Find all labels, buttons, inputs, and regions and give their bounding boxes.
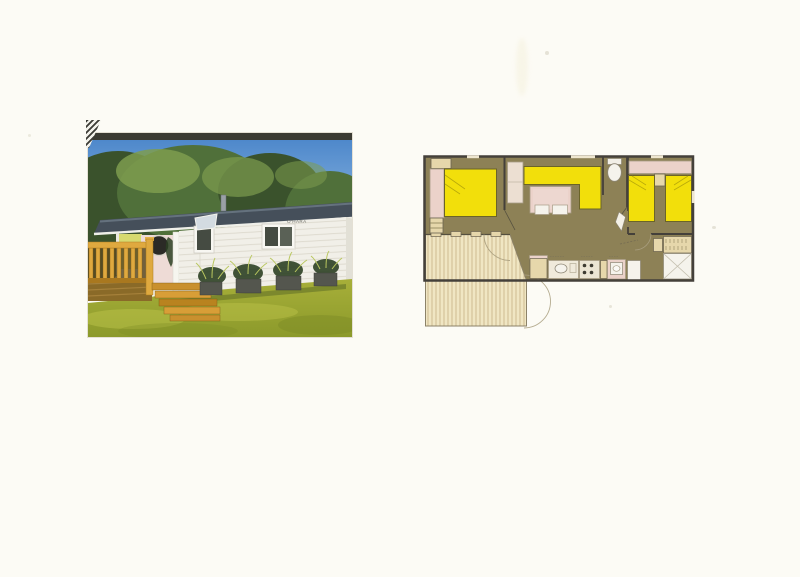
stool: [553, 205, 568, 215]
floorplan-canvas: [423, 155, 695, 329]
chimney-vent: [221, 195, 226, 211]
mobile-home-photo: O'HARA: [88, 133, 352, 337]
living-room: [524, 167, 601, 215]
wardrobe: [508, 162, 524, 203]
scan-speck: [545, 51, 549, 55]
top-rail: [88, 242, 151, 248]
stool: [535, 205, 549, 215]
window-awning-open: [194, 214, 217, 253]
bathroom-door-leaf: [628, 261, 641, 281]
sink: [555, 264, 567, 273]
window-double: [261, 224, 296, 251]
scan-speck: [28, 134, 31, 137]
wardrobe: [430, 169, 444, 218]
photo-canvas: O'HARA: [88, 133, 352, 337]
stove: [580, 261, 600, 279]
scan-speck: [712, 226, 716, 229]
nightstand: [655, 174, 666, 186]
brand-sign: O'HARA: [287, 219, 307, 224]
headboard-shelf: [629, 161, 692, 174]
scan-smudge: [516, 38, 528, 96]
scan-speck: [609, 305, 612, 308]
scanned-brochure-page: O'HARA: [0, 0, 800, 577]
door-swing-arc: [524, 275, 551, 328]
vanity: [664, 237, 692, 254]
toilet: [608, 164, 622, 182]
double-bed: [445, 169, 497, 217]
photo-top-strip: [88, 133, 352, 141]
mobile-home-floorplan: [423, 155, 695, 329]
